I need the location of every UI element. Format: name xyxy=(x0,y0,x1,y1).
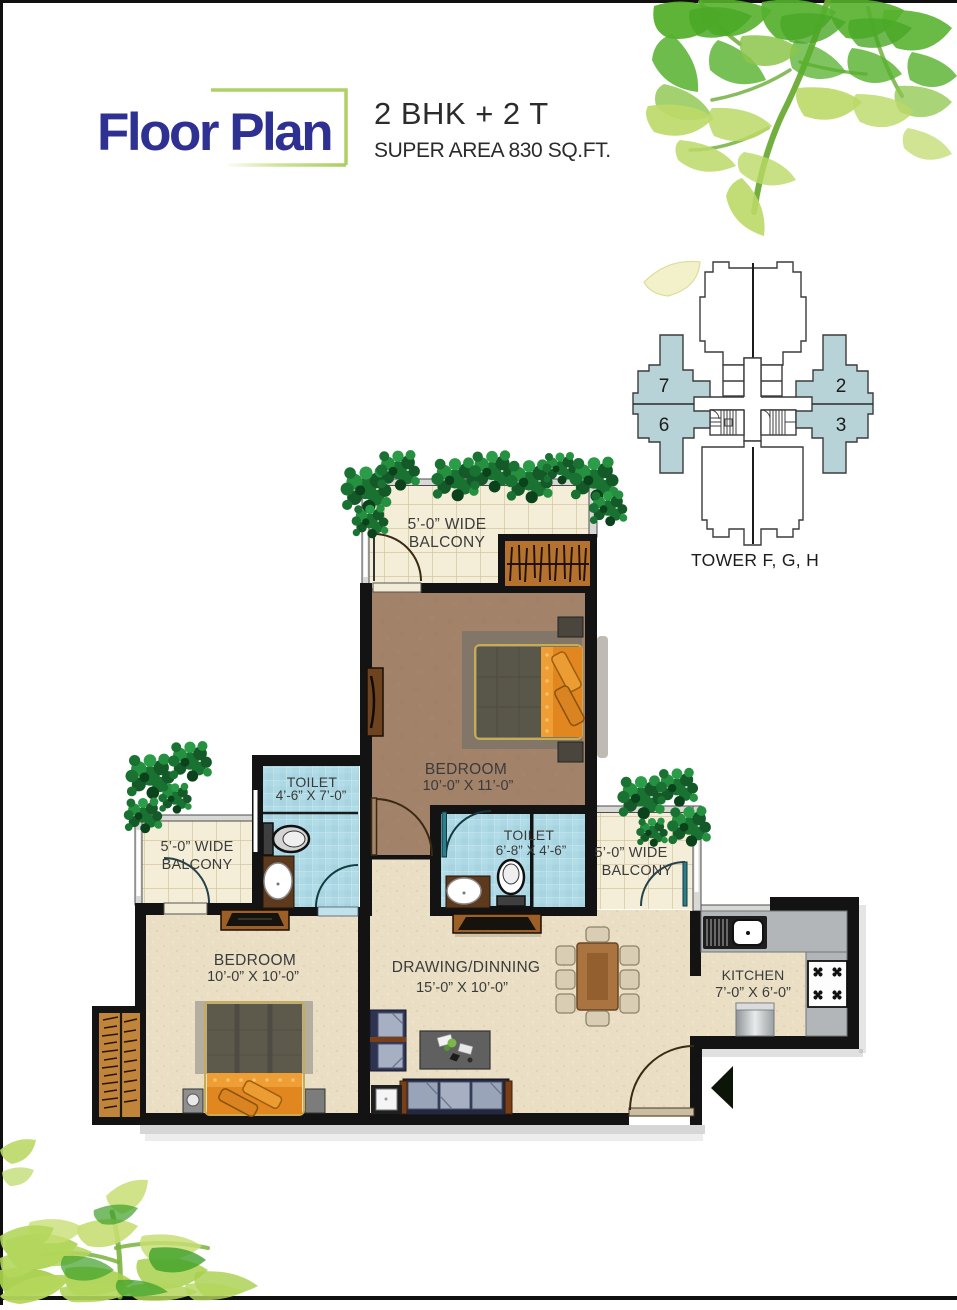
svg-text:6: 6 xyxy=(659,415,670,436)
svg-text:TOILET: TOILET xyxy=(504,827,555,843)
svg-text:BALCONY: BALCONY xyxy=(409,534,485,551)
svg-text:7: 7 xyxy=(659,376,670,397)
svg-text:KITCHEN: KITCHEN xyxy=(722,967,785,983)
svg-text:15’-0” X 10’-0”: 15’-0” X 10’-0” xyxy=(416,980,508,996)
svg-text:3: 3 xyxy=(836,415,847,436)
svg-text:BEDROOM: BEDROOM xyxy=(425,761,507,778)
svg-text:5’-0” WIDE: 5’-0” WIDE xyxy=(595,845,668,861)
svg-text:7’-0” X 6’-0”: 7’-0” X 6’-0” xyxy=(715,985,791,1001)
svg-text:Floor Plan: Floor Plan xyxy=(97,103,331,162)
svg-text:BALCONY: BALCONY xyxy=(162,857,233,873)
svg-text:2: 2 xyxy=(836,376,847,397)
svg-text:6’-8” X 4’-6”: 6’-8” X 4’-6” xyxy=(496,843,567,858)
svg-text:10’-0” X 10’-0”: 10’-0” X 10’-0” xyxy=(207,969,299,985)
svg-text:10’-0” X 11’-0”: 10’-0” X 11’-0” xyxy=(423,778,514,794)
svg-text:2 BHK + 2 T: 2 BHK + 2 T xyxy=(374,96,549,131)
svg-text:BALCONY: BALCONY xyxy=(602,863,673,879)
svg-text:5’-0” WIDE: 5’-0” WIDE xyxy=(161,839,234,855)
svg-text:TOWER F, G, H: TOWER F, G, H xyxy=(691,550,819,570)
svg-text:5’-0” WIDE: 5’-0” WIDE xyxy=(408,516,487,533)
svg-text:4’-6” X 7’-0”: 4’-6” X 7’-0” xyxy=(276,788,347,803)
svg-text:SUPER AREA 830 SQ.FT.: SUPER AREA 830 SQ.FT. xyxy=(374,139,611,162)
svg-text:DRAWING/DINNING: DRAWING/DINNING xyxy=(392,959,541,976)
svg-text:BEDROOM: BEDROOM xyxy=(214,952,296,969)
